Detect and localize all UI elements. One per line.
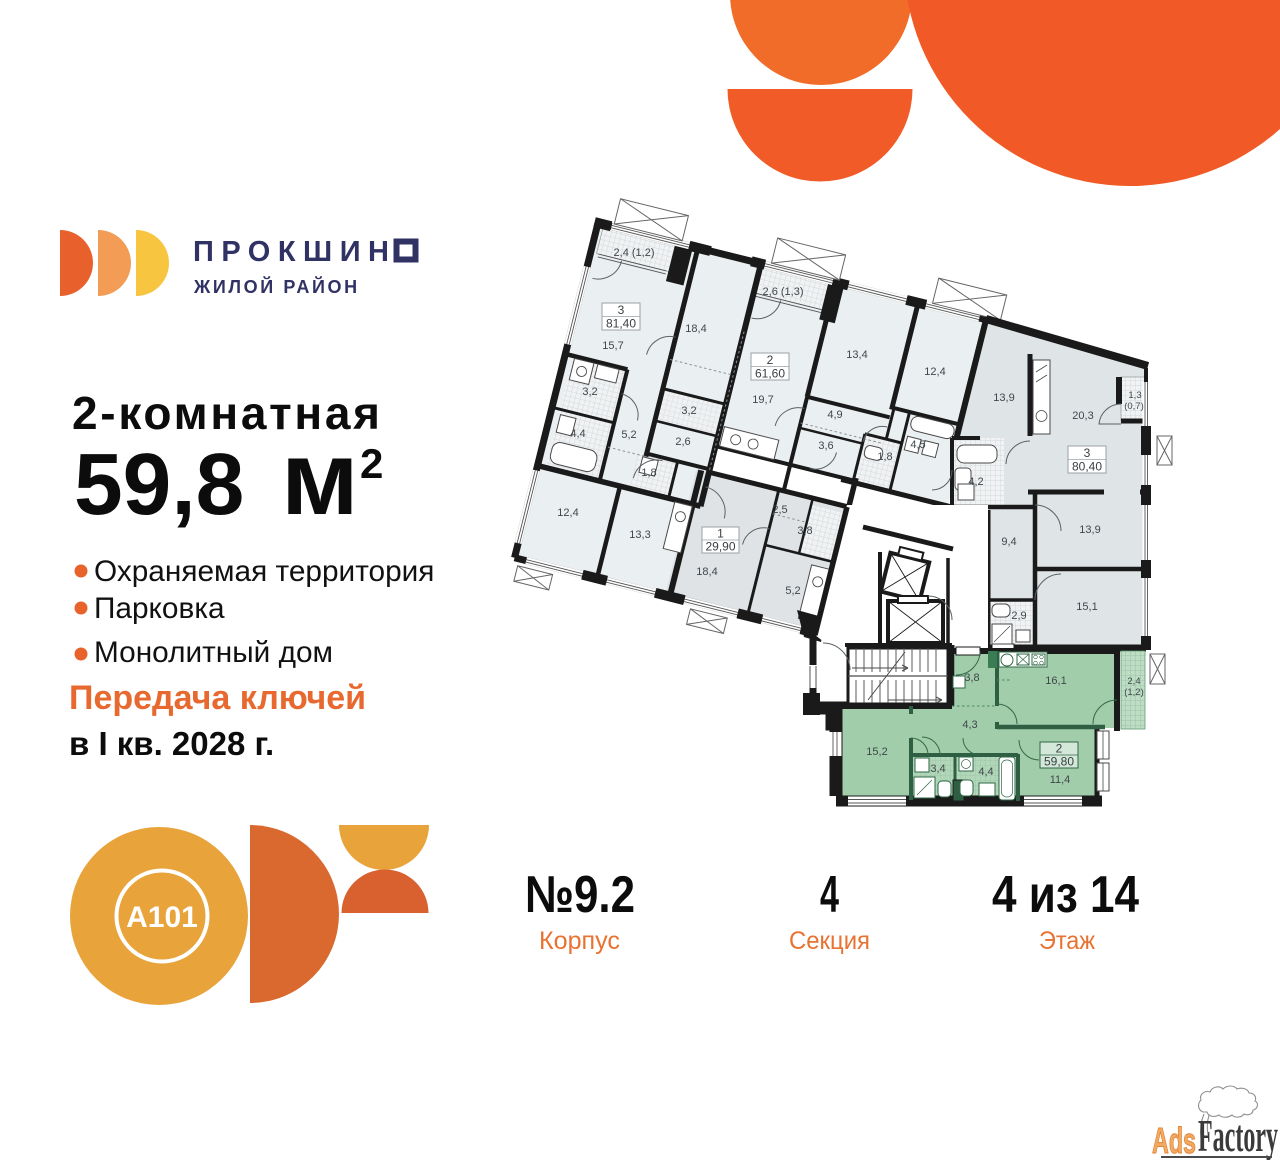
svg-text:18,4: 18,4 xyxy=(696,566,717,578)
svg-text:2,6: 2,6 xyxy=(675,436,690,448)
svg-text:11,4: 11,4 xyxy=(1050,774,1071,786)
svg-text:13,9: 13,9 xyxy=(993,392,1014,404)
svg-text:Передача ключей: Передача ключей xyxy=(69,679,366,717)
svg-text:29,90: 29,90 xyxy=(705,540,735,554)
svg-text:59,80: 59,80 xyxy=(1044,755,1074,769)
svg-text:15,1: 15,1 xyxy=(1076,601,1097,613)
svg-text:4 из 14: 4 из 14 xyxy=(992,866,1139,924)
svg-text:3,6: 3,6 xyxy=(818,440,833,452)
svg-text:15,2: 15,2 xyxy=(866,746,887,758)
svg-text:2: 2 xyxy=(1056,742,1063,756)
svg-text:Factory: Factory xyxy=(1198,1111,1278,1160)
svg-text:ЖИЛОЙ РАЙОН: ЖИЛОЙ РАЙОН xyxy=(193,276,360,297)
svg-text:3,8: 3,8 xyxy=(964,672,979,684)
svg-text:15,7: 15,7 xyxy=(602,340,623,352)
svg-text:1,8: 1,8 xyxy=(641,467,656,479)
svg-text:12,4: 12,4 xyxy=(924,366,945,378)
svg-text:16,1: 16,1 xyxy=(1045,675,1066,687)
svg-text:4,4: 4,4 xyxy=(570,428,585,440)
svg-text:3,2: 3,2 xyxy=(681,405,696,417)
svg-text:4,4: 4,4 xyxy=(978,766,993,778)
svg-text:61,60: 61,60 xyxy=(755,367,785,381)
svg-text:4: 4 xyxy=(820,866,839,924)
svg-text:2,4 (1,2): 2,4 (1,2) xyxy=(614,247,655,259)
svg-text:3: 3 xyxy=(618,303,625,317)
svg-text:13,9: 13,9 xyxy=(1079,524,1100,536)
svg-text:3,2: 3,2 xyxy=(582,386,597,398)
svg-text:Этаж: Этаж xyxy=(1039,927,1095,955)
svg-text:Охраняемая территория: Охраняемая территория xyxy=(94,555,434,588)
svg-text:3,8: 3,8 xyxy=(797,525,812,537)
svg-text:18,4: 18,4 xyxy=(685,323,706,335)
svg-text:5,2: 5,2 xyxy=(621,429,636,441)
svg-text:1: 1 xyxy=(717,527,724,541)
svg-text:A101: A101 xyxy=(126,901,198,934)
svg-text:9,4: 9,4 xyxy=(1001,536,1016,548)
svg-text:20,3: 20,3 xyxy=(1072,410,1093,422)
svg-text:2: 2 xyxy=(767,353,774,367)
svg-text:м: м xyxy=(281,420,359,537)
svg-text:13,3: 13,3 xyxy=(629,529,650,541)
svg-text:в I кв. 2028 г.: в I кв. 2028 г. xyxy=(69,725,274,762)
svg-text:2,6 (1,3): 2,6 (1,3) xyxy=(763,286,804,298)
svg-text:13,4: 13,4 xyxy=(846,349,867,361)
svg-text:4,5: 4,5 xyxy=(910,439,925,451)
svg-text:80,40: 80,40 xyxy=(1072,460,1102,474)
svg-text:(0,7): (0,7) xyxy=(1124,401,1144,412)
svg-text:19,7: 19,7 xyxy=(752,394,773,406)
svg-text:81,40: 81,40 xyxy=(606,317,636,331)
svg-text:5,2: 5,2 xyxy=(785,585,800,597)
svg-text:№9.2: №9.2 xyxy=(525,866,635,924)
svg-text:Монолитный дом: Монолитный дом xyxy=(94,636,333,669)
svg-text:Парковка: Парковка xyxy=(94,592,225,625)
svg-text:4,3: 4,3 xyxy=(962,719,977,731)
svg-text:2: 2 xyxy=(360,440,383,487)
svg-text:Корпус: Корпус xyxy=(539,927,620,955)
svg-text:ПРОКШИН: ПРОКШИН xyxy=(193,236,397,268)
svg-text:(1,2): (1,2) xyxy=(1124,687,1144,698)
svg-text:4,2: 4,2 xyxy=(968,476,983,488)
svg-text:Секция: Секция xyxy=(789,927,870,955)
svg-text:2,5: 2,5 xyxy=(772,504,787,516)
svg-text:3: 3 xyxy=(1084,446,1091,460)
svg-text:12,4: 12,4 xyxy=(557,507,578,519)
svg-text:59,8: 59,8 xyxy=(74,435,244,533)
svg-text:2,4: 2,4 xyxy=(1127,676,1140,687)
svg-text:2,9: 2,9 xyxy=(1011,610,1026,622)
svg-text:1,3: 1,3 xyxy=(1128,390,1141,401)
svg-text:3,4: 3,4 xyxy=(930,763,945,775)
svg-text:Ads: Ads xyxy=(1152,1120,1196,1160)
svg-text:4,9: 4,9 xyxy=(827,409,842,421)
svg-text:1,8: 1,8 xyxy=(877,451,892,463)
